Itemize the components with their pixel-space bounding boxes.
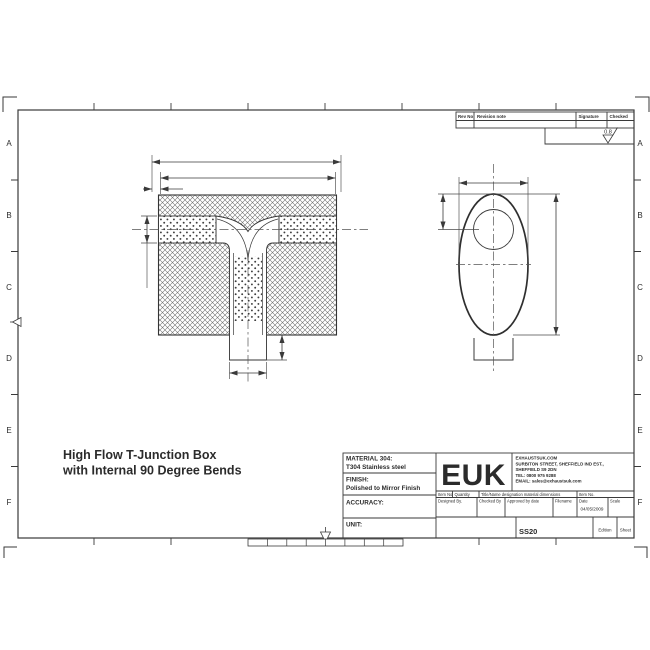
rev-no-header: Rev No (458, 114, 473, 119)
scale-header: Scale (610, 499, 621, 504)
company-line-4: TEL: 0800 975 9288 (516, 473, 557, 478)
date-header: Date (579, 499, 588, 504)
title-line-1: High Flow T-Junction Box (63, 448, 217, 462)
quantity-header: Quantity (455, 492, 471, 497)
title-name-header: Title/Name designation material dimensio… (481, 492, 560, 497)
zone-letter: E (637, 426, 642, 435)
material-label: MATERIAL 304: (346, 456, 392, 463)
company-line-3: SHEFFIELD S9 2DN (516, 467, 557, 472)
unit-label: UNIT: (346, 522, 362, 529)
surface-finish-note: 0.8 (545, 128, 634, 145)
side-view (438, 164, 560, 374)
zone-letter: B (637, 211, 642, 220)
zone-letter: D (6, 354, 12, 363)
zone-letter: D (637, 354, 643, 363)
front-view (132, 155, 368, 384)
drawing-title: High Flow T-Junction Box with Internal 9… (62, 448, 242, 478)
signature-header: Signature (579, 114, 600, 119)
zone-letter: A (6, 139, 12, 148)
title-block: MATERIAL 304: T304 Stainless steel FINIS… (343, 453, 634, 538)
zone-letter: F (638, 498, 643, 507)
approval-row: Designed By. Checked By Approved by date… (438, 499, 621, 512)
checked-by-header: Checked By (479, 499, 502, 504)
checked-header: Checked (610, 114, 629, 119)
finish-value: Polished to Mirror Finish (346, 485, 420, 492)
centering-mark-left (10, 318, 21, 327)
drawing-sheet: A B C D E F A B C D E F Rev No Revision … (0, 0, 650, 650)
approved-by-header: Approved by date (507, 499, 540, 504)
zone-letter: B (6, 211, 11, 220)
accuracy-label: ACCURACY: (346, 500, 384, 507)
finish-label: FINISH: (346, 477, 369, 484)
revision-note-header: Revision note (477, 114, 506, 119)
company-logo: EUK (441, 459, 506, 492)
title-line-2: with Internal 90 Degree Bends (62, 464, 242, 478)
zone-letter: F (7, 498, 12, 507)
company-line-5: EMAIL: sales@exhaustsuk.com (516, 479, 582, 484)
zone-letter: C (637, 283, 643, 292)
item-no-header: Item No (438, 492, 453, 497)
edition-label: Edition (598, 528, 612, 533)
zone-letter: E (6, 426, 11, 435)
zone-letter: A (637, 139, 643, 148)
part-number: SS20 (519, 527, 537, 536)
company-line-1: EXHAUSTSUK.COM (516, 456, 558, 461)
parts-header-row: Item No Quantity Title/Name designation … (438, 492, 594, 497)
company-line-2: SURBITON STREET, SHEFFIELD IND EST., (516, 461, 604, 466)
zone-letter: C (6, 283, 12, 292)
material-value: T304 Stainless steel (346, 464, 406, 471)
date-value: 04/05/2009 (581, 507, 604, 512)
cad-drawing-svg: A B C D E F A B C D E F Rev No Revision … (0, 0, 650, 650)
item-no2-header: Item No. (579, 492, 594, 497)
company-address: EXHAUSTSUK.COM SURBITON STREET, SHEFFIEL… (516, 456, 604, 484)
revision-table: Rev No Revision note Signature Checked (456, 112, 634, 128)
bottom-scale-bar (248, 527, 403, 546)
filename-header: Filename (555, 499, 573, 504)
designed-by-header: Designed By. (438, 499, 462, 504)
sheet-label: Sheet (620, 528, 632, 533)
